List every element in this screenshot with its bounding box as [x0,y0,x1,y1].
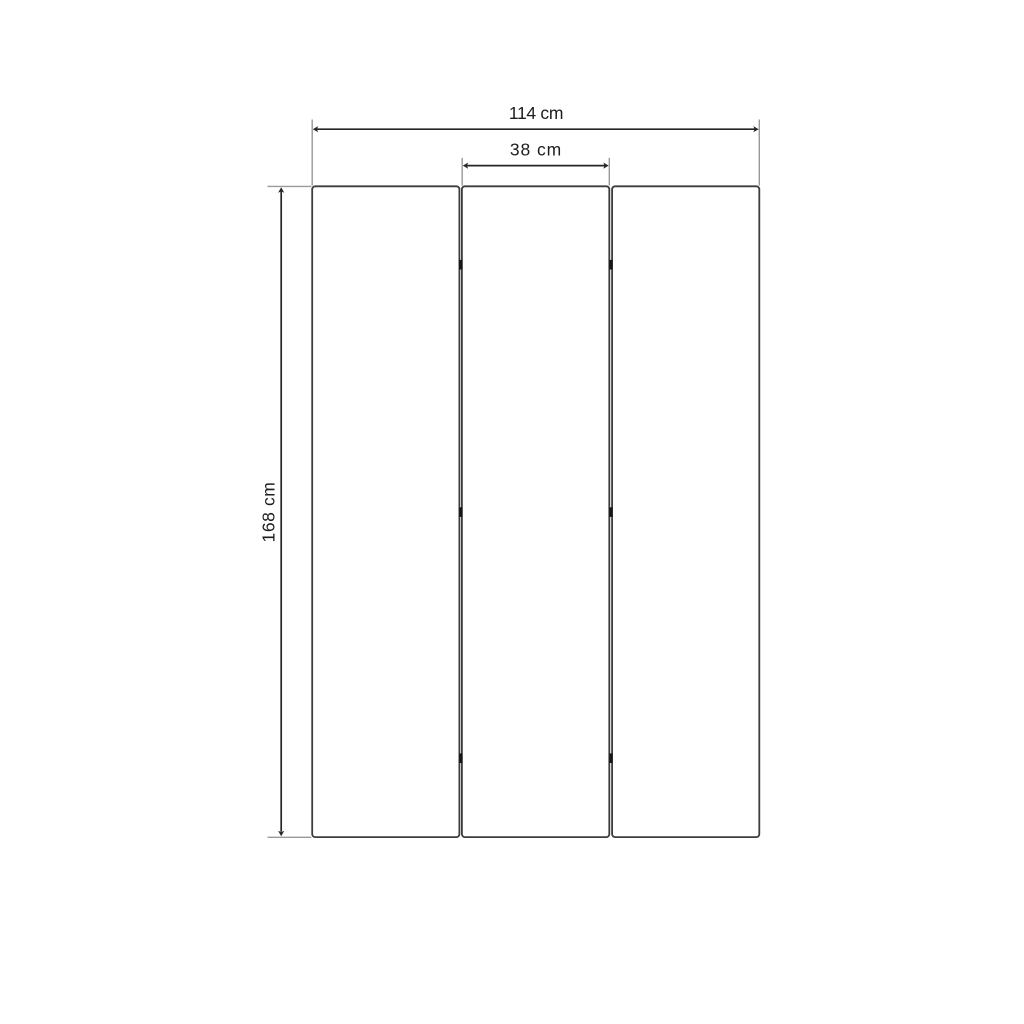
svg-text:114 cm: 114 cm [509,103,563,123]
svg-text:168 cm: 168 cm [259,482,279,543]
svg-text:38 cm: 38 cm [510,140,562,160]
